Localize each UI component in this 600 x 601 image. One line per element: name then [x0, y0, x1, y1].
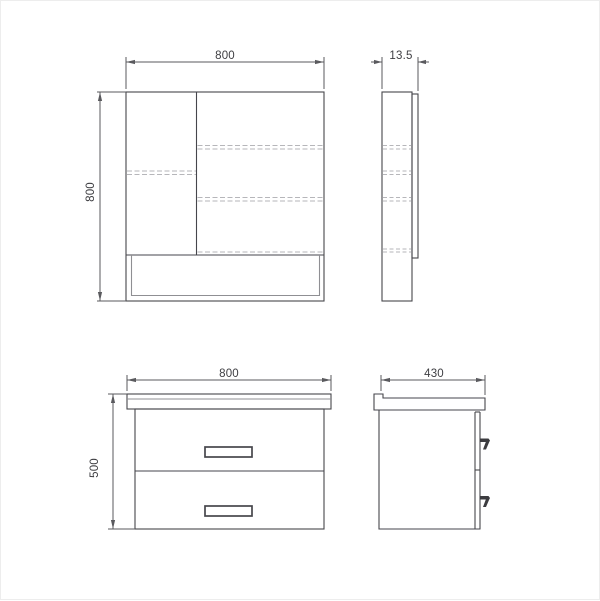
- mirror-side-depth-label: 13.5: [389, 50, 412, 62]
- open-shelf-inner-walls: [132, 255, 320, 296]
- mirror-cabinet-front-view: 800 800: [85, 50, 324, 301]
- mirror-front-width-label: 800: [215, 50, 235, 62]
- vanity-side-drawer-front: [475, 412, 480, 529]
- mirror-cabinet-body-outline: [126, 92, 324, 301]
- hidden-shelf-lines: [127, 146, 323, 253]
- vanity-countertop: [127, 394, 331, 409]
- vanity-front-height-label: 500: [89, 458, 101, 478]
- technical-drawing-canvas: 800 800: [0, 0, 600, 600]
- upper-drawer-handle-profile: [480, 439, 490, 450]
- mirror-side-hidden-shelf-lines: [383, 146, 411, 253]
- vanity-body-outline: [135, 409, 324, 529]
- vanity-front-view: 800 500: [89, 368, 331, 529]
- mirror-front-height-label: 800: [85, 182, 97, 202]
- lower-drawer-handle: [205, 506, 252, 516]
- vanity-side-countertop: [374, 394, 485, 410]
- upper-drawer-handle: [205, 447, 252, 457]
- vanity-side-depth-label: 430: [424, 368, 444, 380]
- vanity-front-width-label: 800: [219, 368, 239, 380]
- lower-drawer-handle-profile: [480, 496, 490, 507]
- mirror-cabinet-side-view: 13.5: [371, 50, 429, 301]
- mirror-side-depth-dimension: [371, 57, 429, 91]
- mirror-front-height-dimension: [97, 92, 126, 301]
- vanity-front-height-dimension: [108, 394, 135, 529]
- mirror-side-body-outline: [382, 92, 412, 301]
- vanity-side-view: 430: [374, 368, 490, 529]
- furniture-dimension-drawing: 800 800: [1, 1, 600, 601]
- mirror-door-slab: [412, 94, 418, 258]
- vanity-side-body-outline: [379, 410, 481, 529]
